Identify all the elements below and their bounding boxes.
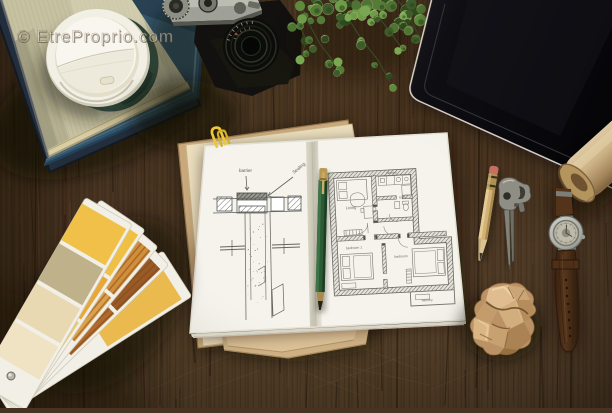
svg-text:balcony: balcony	[422, 298, 434, 303]
svg-text:bedroom 1: bedroom 1	[346, 245, 363, 250]
svg-text:© EtreProprio.com: © EtreProprio.com	[17, 27, 174, 46]
svg-text:Living: Living	[346, 205, 357, 211]
svg-text:bedroom: bedroom	[394, 254, 408, 259]
svg-text:barrier: barrier	[239, 168, 253, 173]
svg-text:bath: bath	[399, 195, 406, 199]
svg-text:kitchen: kitchen	[386, 171, 397, 176]
